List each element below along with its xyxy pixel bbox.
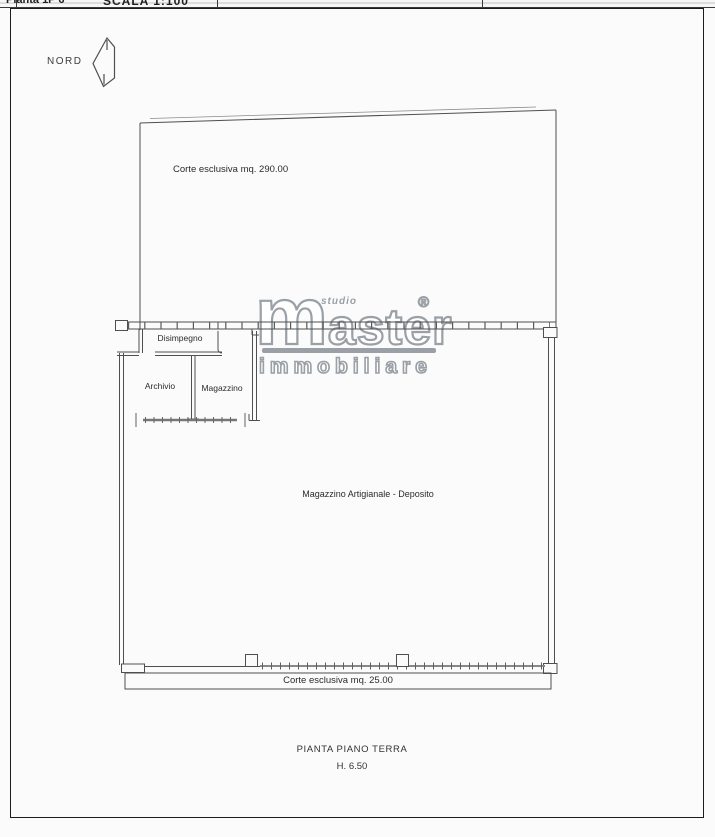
room-label-disimpegno: Disimpegno <box>158 333 203 343</box>
room-label-main-hall: Magazzino Artigianale - Deposito <box>302 489 434 499</box>
agency-logo: studio master ® immobiliare <box>255 288 455 383</box>
logo-bar <box>262 348 436 353</box>
room-label-archivio: Archivio <box>145 381 175 391</box>
courtyard-bottom-label: Corte esclusiva mq. 25.00 <box>283 675 393 686</box>
plan-title: PIANTA PIANO TERRA <box>297 744 408 755</box>
courtyard-top-label: Corte esclusiva mq. 290.00 <box>173 164 288 175</box>
logo-subtitle: immobiliare <box>259 355 432 379</box>
registered-trademark-icon: ® <box>418 294 429 311</box>
scanned-floorplan-page: Pianta 1P 6 SCALA 1:100 NORD studio mast… <box>0 0 715 837</box>
header-divider <box>482 0 483 7</box>
north-label: NORD <box>47 56 82 67</box>
header-fragment-center: SCALA 1:100 <box>103 0 189 8</box>
clipped-header-row: Pianta 1P 6 SCALA 1:100 <box>0 0 715 8</box>
plan-height-note: H. 6.50 <box>337 761 368 772</box>
header-divider <box>16 0 17 7</box>
header-fragment-left: Pianta 1P 6 <box>6 0 65 6</box>
header-divider <box>217 0 218 7</box>
sheet-border <box>10 8 704 818</box>
room-label-magazzino: Magazzino <box>201 383 242 393</box>
